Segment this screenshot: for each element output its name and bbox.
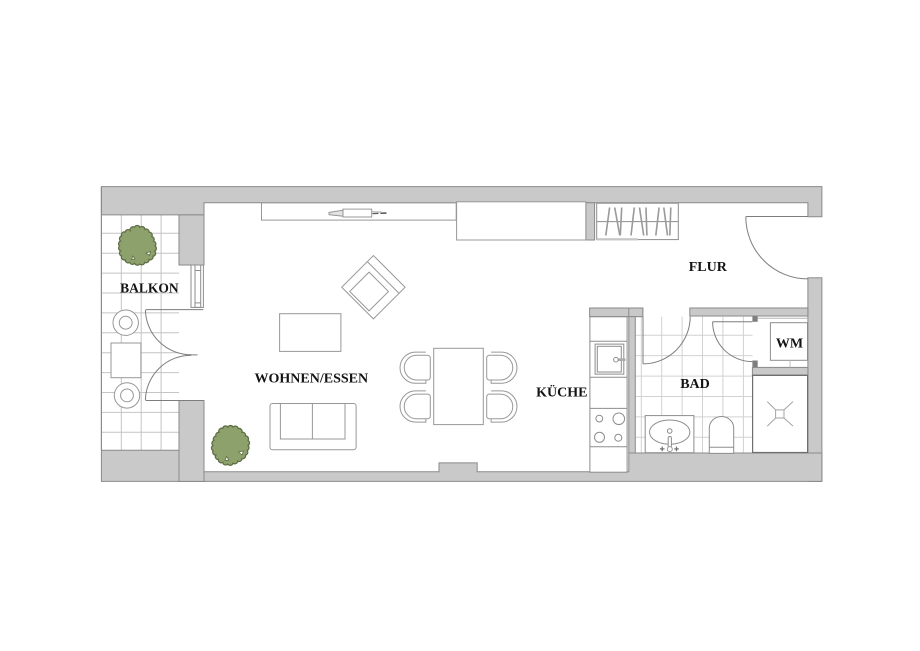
svg-text:WM: WM [776,336,803,351]
svg-text:FLUR: FLUR [689,260,728,275]
svg-text:KÜCHE: KÜCHE [536,383,587,400]
svg-text:BALKON: BALKON [120,280,179,295]
svg-text:WOHNEN/ESSEN: WOHNEN/ESSEN [255,372,369,387]
svg-text:BAD: BAD [680,377,710,392]
